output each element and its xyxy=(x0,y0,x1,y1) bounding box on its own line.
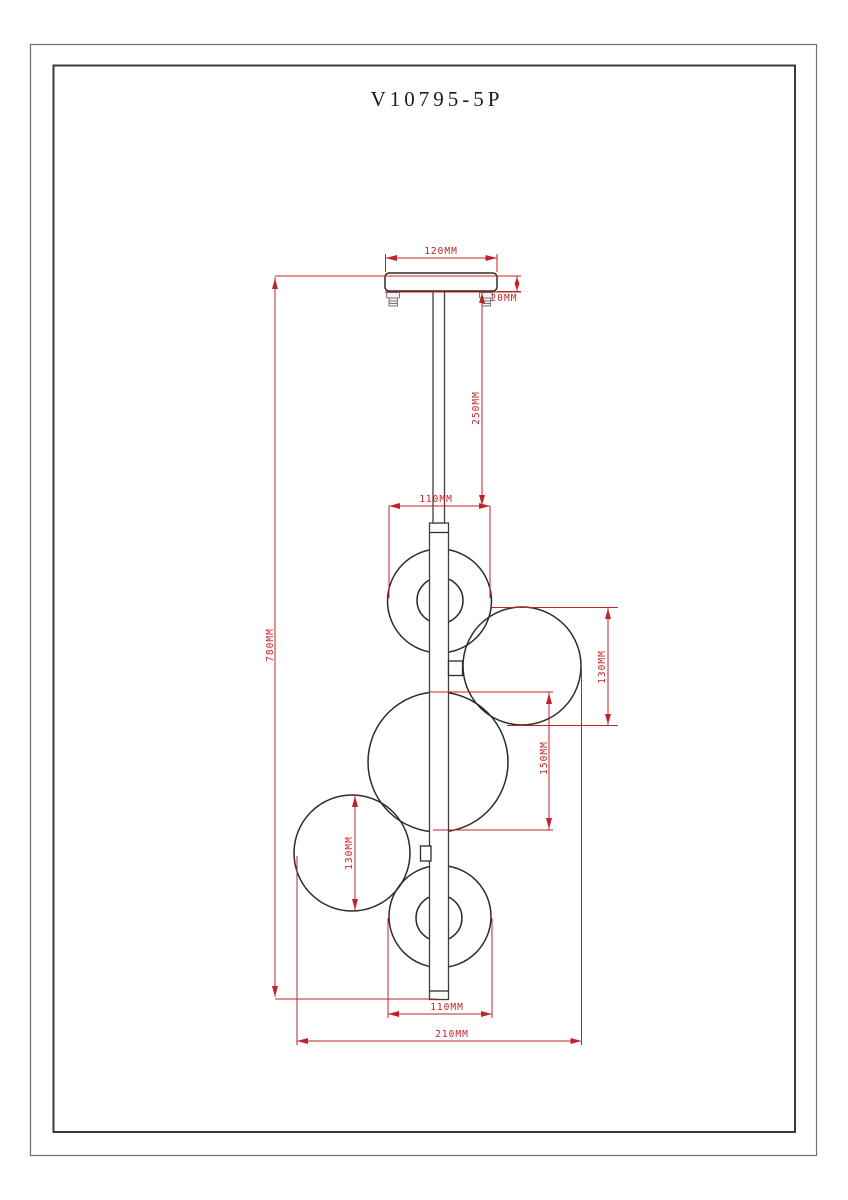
bottom-globe-label: 110MM xyxy=(430,1002,464,1013)
dimension-right-globe: 130MM xyxy=(490,608,618,726)
canopy-width-label: 120MM xyxy=(424,246,458,257)
middle-globe-label: 150MM xyxy=(539,741,550,775)
inner-border-frame xyxy=(54,66,796,1133)
center-stem xyxy=(430,523,449,1000)
lamp-fixture xyxy=(294,273,581,1000)
suspension-rod xyxy=(433,291,445,523)
right-globe-bracket xyxy=(449,661,463,676)
dimension-left-globe: 130MM xyxy=(344,795,358,911)
left-globe-bracket xyxy=(421,846,432,861)
mounting-screw-left xyxy=(387,293,400,307)
dimension-canopy-width: 120MM xyxy=(386,246,498,272)
dimension-rod-length: 250MM xyxy=(471,292,485,506)
overall-width-label: 210MM xyxy=(435,1029,469,1040)
left-globe-label: 130MM xyxy=(344,836,355,870)
outer-border-frame xyxy=(31,45,817,1156)
model-number-title: V10795-5P xyxy=(371,87,504,111)
rod-length-label: 250MM xyxy=(471,391,482,425)
top-globe-label: 110MM xyxy=(419,494,453,505)
canopy-thickness-label: 20MM xyxy=(491,293,518,304)
technical-drawing: V10795-5P xyxy=(0,0,848,1200)
dimension-overall-drop-height: 780MM xyxy=(265,276,521,999)
spec-sheet-page: V10795-5P xyxy=(0,0,848,1200)
right-globe-label: 130MM xyxy=(597,650,608,684)
overall-drop-height-label: 780MM xyxy=(265,628,276,662)
